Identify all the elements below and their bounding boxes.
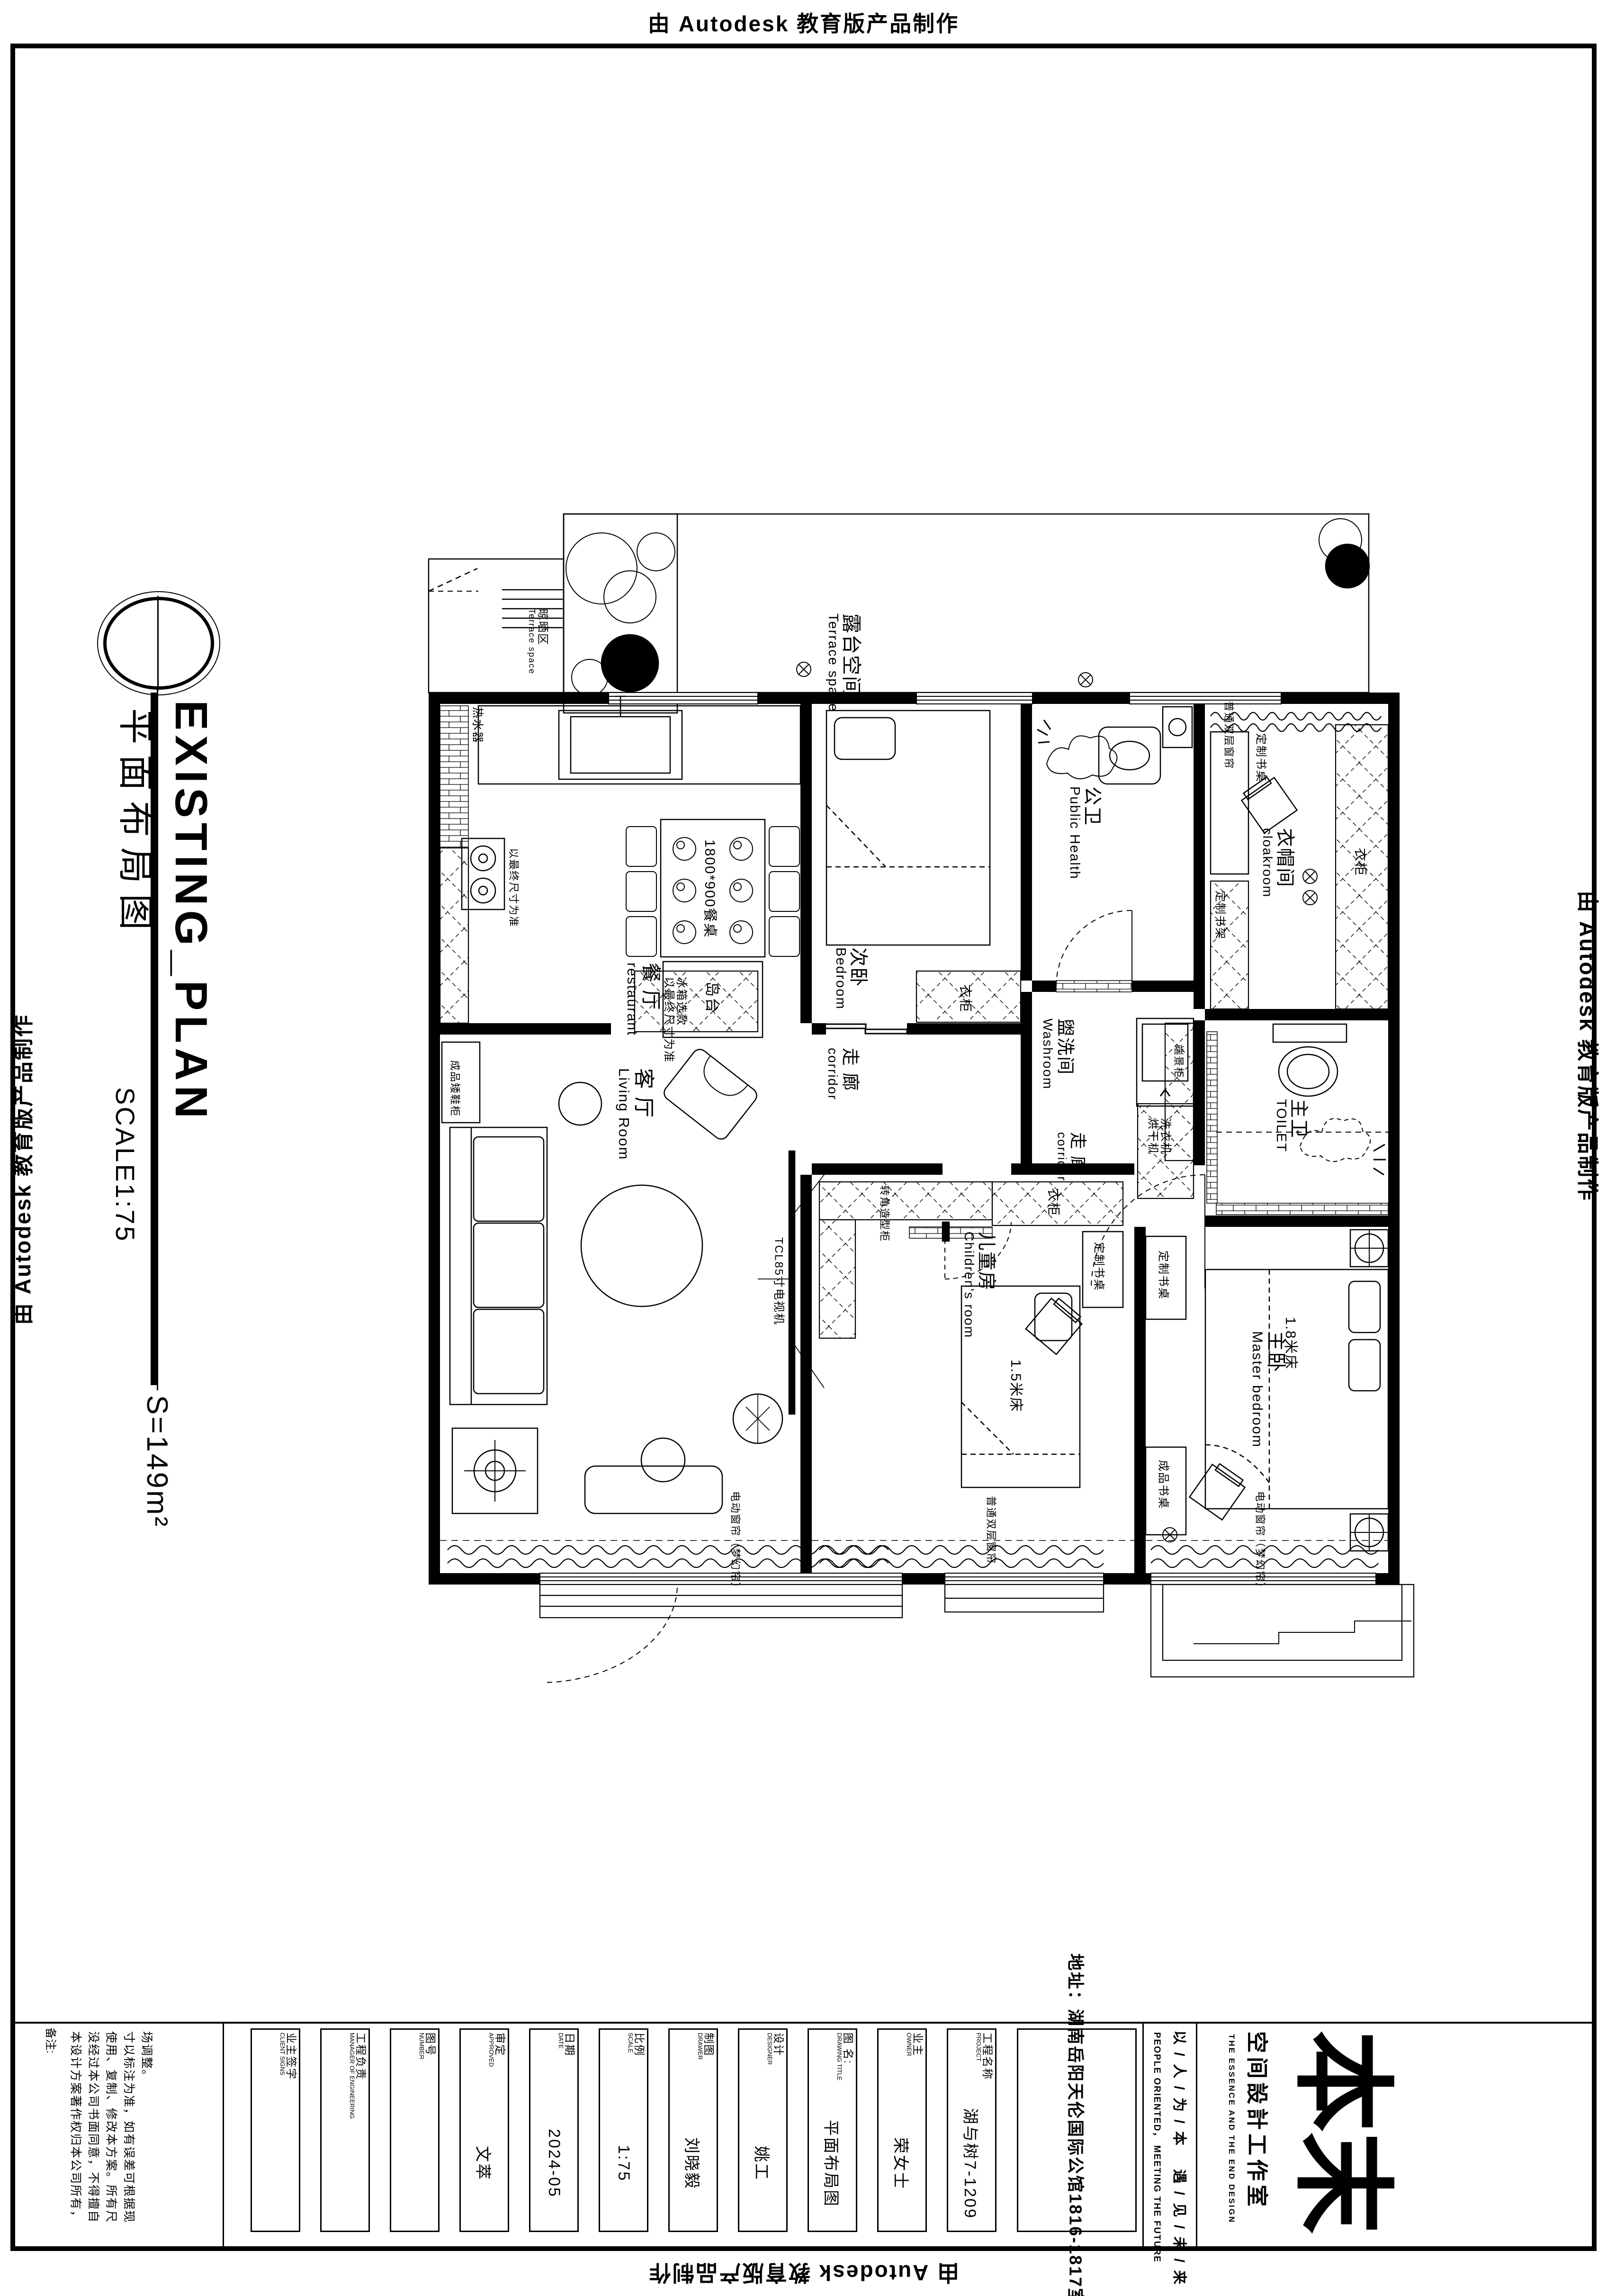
label-master: 主卧 Master bedroom	[1249, 1331, 1287, 1448]
label-public-bath-zh: 公卫	[1082, 786, 1103, 880]
notes-text: 本设计方案著作权归本公司所有，没经过本公司书面同意，不得擅自使用、复制、修改本方…	[66, 2031, 218, 2235]
label-custom-shelf: 定制书架	[1213, 891, 1226, 940]
field-label-en: DESIGNER	[766, 2033, 773, 2065]
field-owner: 业主OWNER 荣女士	[877, 2028, 927, 2232]
label-master-bath-zh: 主卫	[1288, 1099, 1309, 1153]
label-washroom-zh: 盥洗间	[1055, 1018, 1075, 1089]
field-label-en: CLIENT SIGNS	[279, 2033, 286, 2080]
page-title-area: S=149m²	[140, 1395, 174, 1528]
field-designer: 设计DESIGNER 姚工	[738, 2028, 788, 2232]
label-cloakroom: 衣帽间 cloakroom	[1260, 828, 1295, 898]
field-label-zh: 图号	[425, 2033, 436, 2059]
field-label-en: DATE	[557, 2033, 564, 2056]
windows	[540, 693, 1376, 1585]
label-drying-zh: 晾晒区	[536, 609, 548, 675]
field-value: 1:75	[614, 2145, 633, 2182]
label-drying: 晾晒区 Terrace space	[527, 609, 548, 675]
field-date: 日期DATE 2024-05	[529, 2028, 579, 2232]
label-corridor2-zh: 走 廊	[1069, 1132, 1088, 1181]
field-label-zh: 业主	[912, 2033, 924, 2056]
label-master-bath-en: TOILET	[1273, 1099, 1288, 1153]
field-approved: 审定APPROVED 文萃	[459, 2028, 509, 2232]
curtains	[440, 712, 1388, 1567]
floor-plan	[403, 483, 1478, 1696]
label-washer-2: 烘干机	[1146, 1118, 1158, 1155]
page-title-scale: SCALE1:75	[110, 1087, 141, 1243]
address-box: 地址：湖南岳阳天伦国际公馆1816-1817室	[1017, 2028, 1137, 2232]
label-end-cabinet: 端景柜	[1173, 1044, 1184, 1079]
label-curtain-master: 电动窗帘（梦幻帘）	[1254, 1491, 1266, 1594]
logo-studio-name: 空间設計工作室	[1243, 2031, 1274, 2210]
label-living: 客 厅 Living Room	[616, 1068, 655, 1160]
label-tv: TCL85寸电视机	[772, 1237, 784, 1325]
label-fridge-2: 以最终尺寸为准	[662, 977, 674, 1063]
label-bedroom2-en: Bedroom	[833, 947, 848, 1010]
label-custom-desk-cloak: 定制书桌	[1254, 733, 1266, 783]
label-corridor1-en: corridor	[825, 1048, 840, 1100]
label-washer-1: 洗衣机	[1158, 1118, 1171, 1155]
label-washroom: 盥洗间 Washroom	[1040, 1018, 1075, 1089]
field-label-en: SCALE	[627, 2033, 634, 2056]
field-label-en: NUMBER	[418, 2033, 425, 2059]
label-public-bath: 公卫 Public Health	[1067, 786, 1103, 880]
field-drawer: 制图DRAWER 刘晓毅	[668, 2028, 718, 2232]
label-dining-table: 1800*900餐桌	[702, 839, 718, 938]
field-label-en: PROJECT	[975, 2033, 982, 2080]
field-label-zh: 日期	[564, 2033, 575, 2056]
field-value: 2024-05	[545, 2129, 563, 2198]
label-public-bath-en: Public Health	[1067, 786, 1082, 880]
field-label-zh: 工程名称	[982, 2033, 993, 2080]
field-manager: 工程负责MANAGER OF ENGINEERING	[320, 2028, 370, 2232]
label-dining: 餐 厅 restaurant	[624, 963, 662, 1036]
field-label-zh: 业主签字	[286, 2033, 297, 2080]
label-living-en: Living Room	[616, 1068, 632, 1160]
window-top-cloakroom	[1130, 693, 1281, 704]
section-bubble	[103, 597, 214, 690]
stamp-bottom: 由 Autodesk 教育版产品制作	[0, 2259, 1607, 2290]
field-label-zh: 制图	[703, 2033, 715, 2060]
label-bedroom2-zh: 次卧	[848, 947, 869, 1010]
label-drying-en: Terrace space	[527, 609, 536, 675]
drawing-sheet: 由 Autodesk 教育版产品制作 由 Autodesk 教育版产品制作 由 …	[0, 0, 1607, 2296]
field-client-signs: 业主签字CLIENT SIGNS	[251, 2028, 300, 2232]
label-dining-en: restaurant	[624, 963, 640, 1036]
page-title-en: EXISTING_PLAN	[165, 700, 217, 1123]
label-corridor-2: 走 廊 corridor	[1055, 1132, 1087, 1181]
label-children: 儿童房 Children's room	[961, 1232, 997, 1338]
label-wardrobe-bedroom2: 衣柜	[958, 984, 972, 1013]
logo-tagline: THE ESSENCE AND THE END DESIGN	[1227, 2034, 1236, 2224]
label-fridge-1: 冰箱选款	[674, 977, 687, 1063]
field-number: 图号NUMBER	[390, 2028, 440, 2232]
stamp-top: 由 Autodesk 教育版产品制作	[0, 7, 1607, 38]
label-terrace-en: Terrace space	[825, 613, 840, 712]
label-island: 岛台	[704, 981, 720, 1014]
notes-separator	[223, 2022, 224, 2250]
label-children-en: Children's room	[961, 1232, 976, 1338]
field-label-en: DRAWING TITLE	[836, 2033, 843, 2080]
logo-glyph: 本末	[1278, 2030, 1425, 2234]
label-corridor-1: 走 廊 corridor	[825, 1048, 860, 1100]
label-curtain-children: 普通双层窗帘	[985, 1496, 997, 1564]
notes-label: 备注:	[44, 2027, 60, 2053]
field-label-en: OWNER	[906, 2033, 912, 2056]
label-custom-desk-master: 定制书桌	[1157, 1251, 1169, 1300]
label-stove-note: 以最终尺寸为准	[508, 848, 519, 927]
window-bottom-living	[540, 1573, 902, 1585]
label-dining-zh: 餐 厅	[640, 963, 662, 1036]
label-wardrobe-cloak: 衣柜	[1353, 848, 1367, 876]
label-curtain-living: 电动窗帘（梦幻帘）	[729, 1491, 741, 1594]
label-terrace-zh: 露台空间	[840, 613, 862, 712]
address-label: 地址：	[1066, 1954, 1086, 2009]
label-shoe-cabinet: 成品矮鞋柜	[449, 1060, 460, 1117]
doors	[429, 591, 1205, 1683]
field-value: 湖与树7-1209	[960, 2108, 983, 2219]
field-value: 平面布局图	[821, 2120, 844, 2207]
field-label-zh: 审定	[494, 2033, 506, 2067]
field-label-zh: 图 名:	[843, 2033, 854, 2080]
label-fridge: 冰箱选款 以最终尺寸为准	[662, 977, 687, 1063]
window-top-kitchen	[609, 693, 758, 704]
slogan-box: 以 / 人 / 为 / 本 遇 / 见 / 未 / 来 PEOPLE ORIEN…	[1142, 2022, 1197, 2250]
label-corridor1-zh: 走 廊	[840, 1048, 860, 1100]
label-wardrobe-children: 衣柜	[1046, 1188, 1060, 1216]
label-curtain-cloak: 普通双层窗帘	[1223, 701, 1234, 769]
field-value: 刘晓毅	[682, 2137, 705, 2190]
field-label-zh: 设计	[773, 2033, 784, 2065]
label-water-heater: 热水器	[471, 707, 483, 744]
label-corridor2-en: corridor	[1055, 1132, 1069, 1181]
field-value: 文萃	[473, 2146, 496, 2181]
field-scale: 比例SCALE 1:75	[599, 2028, 648, 2232]
field-project: 工程名称PROJECT 湖与树7-1209	[947, 2028, 997, 2232]
window-bottom-children	[945, 1573, 1104, 1585]
field-drawing-title: 图 名:DRAWING TITLE 平面布局图	[808, 2028, 857, 2232]
field-label-en: APPROVED	[488, 2033, 494, 2067]
label-bed15: 1.5米床	[1008, 1360, 1023, 1413]
field-value: 姚工	[751, 2146, 774, 2181]
label-washer: 洗衣机 烘干机	[1146, 1118, 1171, 1155]
field-value: 荣女士	[890, 2137, 914, 2190]
field-label-zh: 比例	[634, 2033, 645, 2056]
label-bed18: 1.8米床	[1283, 1317, 1298, 1370]
window-top-bedroom2	[916, 693, 1032, 704]
label-custom-desk-children: 定制书桌	[1092, 1242, 1104, 1291]
label-corner-cabinet: 转角造型柜	[879, 1185, 890, 1242]
field-label-en: DRAWER	[697, 2033, 703, 2060]
label-ready-desk: 成品书桌	[1157, 1460, 1169, 1509]
address-value: 湖南岳阳天伦国际公馆1816-1817室	[1066, 2009, 1086, 2296]
logo-area: THE ESSENCE AND THE END DESIGN 空间設計工作室 本…	[1197, 2022, 1597, 2250]
label-terrace: 露台空间 Terrace space	[825, 613, 862, 712]
label-living-zh: 客 厅	[632, 1068, 655, 1160]
label-washroom-en: Washroom	[1040, 1018, 1055, 1089]
bay-windows	[540, 1585, 1414, 1677]
page-title-zh: 平面布局图	[113, 708, 165, 940]
label-master-en: Master bedroom	[1249, 1331, 1265, 1448]
label-master-bath: 主卫 TOILET	[1273, 1099, 1309, 1153]
label-cloakroom-en: cloakroom	[1260, 828, 1275, 898]
label-bedroom2: 次卧 Bedroom	[833, 947, 869, 1010]
slogan-en: PEOPLE ORIENTED， MEETING THE FUTURE	[1151, 2032, 1164, 2263]
label-children-zh: 儿童房	[976, 1232, 997, 1338]
walls	[429, 693, 1400, 1585]
slogan-zh: 以 / 人 / 为 / 本 遇 / 见 / 未 / 来	[1170, 2030, 1191, 2286]
label-cloakroom-zh: 衣帽间	[1275, 828, 1295, 898]
section-bubble-axis	[157, 596, 159, 691]
